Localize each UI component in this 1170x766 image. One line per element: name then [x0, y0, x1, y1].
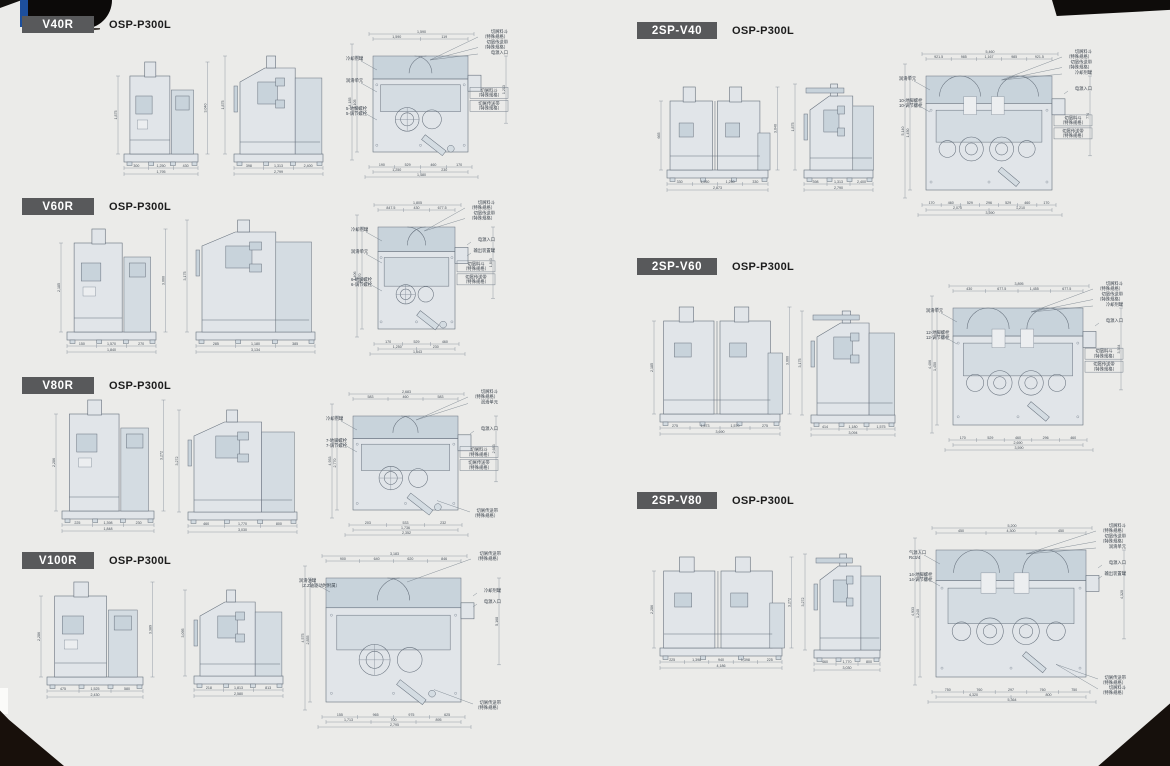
svg-text:1,250: 1,250 — [157, 164, 166, 168]
model-badge-2sp-v40: 2SP-V40 — [637, 22, 717, 39]
section-header-v80r: V80R OSP-P300L — [22, 377, 171, 394]
svg-text:（特殊规格）: （特殊规格） — [1091, 352, 1117, 359]
svg-text:330: 330 — [677, 180, 683, 184]
svg-text:电源入口: 电源入口 — [1109, 559, 1126, 566]
v80r-front-view-drawing: 2251,3982301,8483,2722,286 — [50, 393, 168, 537]
svg-text:3,590: 3,590 — [986, 211, 995, 215]
svg-text:（特殊规格）: （特殊规格） — [476, 105, 502, 112]
svg-text:（特殊规格）: （特殊规格） — [475, 555, 501, 562]
svg-text:218: 218 — [206, 686, 212, 690]
svg-text:3,590: 3,590 — [1015, 446, 1024, 450]
svg-text:3,389: 3,389 — [148, 625, 152, 634]
2sp-v40-plan-svg: 5,460921.59851,167985921.517046052929652… — [898, 48, 1094, 218]
svg-text:800: 800 — [1046, 693, 1052, 697]
svg-text:1,398: 1,398 — [741, 658, 750, 662]
svg-text:430: 430 — [183, 164, 189, 168]
svg-text:6-调节螺栓: 6-调节螺栓 — [351, 281, 373, 288]
svg-text:460: 460 — [403, 395, 409, 399]
svg-text:输出装置罐: 输出装置罐 — [1105, 570, 1127, 577]
svg-text:846: 846 — [441, 557, 447, 561]
svg-text:533: 533 — [403, 521, 409, 525]
svg-text:3,175: 3,175 — [183, 272, 187, 281]
svg-text:529: 529 — [987, 436, 993, 440]
svg-text:460: 460 — [1015, 436, 1021, 440]
svg-text:电源入口: 电源入口 — [481, 425, 498, 432]
svg-text:847.5: 847.5 — [386, 206, 395, 210]
2sp-v80-side-view-drawing: 4601,7708003,0303,272 — [798, 546, 900, 676]
svg-text:190: 190 — [379, 163, 385, 167]
svg-text:2,352: 2,352 — [402, 531, 411, 535]
svg-text:1,455: 1,455 — [1030, 287, 1039, 291]
section-header-2sp-v40: 2SP-V40 OSP-P300L — [637, 22, 794, 39]
svg-text:296: 296 — [1043, 436, 1049, 440]
svg-text:4,186: 4,186 — [717, 664, 726, 668]
svg-text:2,400: 2,400 — [304, 164, 313, 168]
svg-text:（特殊规格）: （特殊规格） — [463, 278, 489, 285]
svg-text:电源入口: 电源入口 — [1075, 85, 1092, 92]
control-label-2sp-v80: OSP-P300L — [732, 495, 794, 507]
svg-text:2,430: 2,430 — [91, 693, 100, 697]
catalog-page: V40R OSP-P300L V60R OSP-P300L V80R OSP-P… — [0, 0, 1170, 766]
svg-text:275: 275 — [672, 424, 678, 428]
svg-text:3,895: 3,895 — [1015, 282, 1024, 286]
svg-text:10-调节螺栓: 10-调节螺栓 — [899, 102, 923, 109]
svg-text:750: 750 — [945, 688, 951, 692]
svg-text:电源入口: 电源入口 — [491, 49, 508, 56]
svg-text:冷却剂罐: 冷却剂罐 — [484, 587, 502, 594]
v100r-front-svg: 4751,5255802,4303,3892,286 — [35, 575, 157, 703]
svg-text:冷却剂罐: 冷却剂罐 — [1075, 69, 1093, 76]
svg-text:677.5: 677.5 — [997, 287, 1006, 291]
svg-text:750: 750 — [1071, 688, 1077, 692]
page-curl-top-right — [1052, 0, 1170, 16]
svg-text:1,590: 1,590 — [392, 35, 401, 39]
svg-text:2,790: 2,790 — [834, 186, 843, 190]
svg-text:1,570: 1,570 — [731, 424, 740, 428]
svg-text:985: 985 — [961, 55, 967, 59]
model-badge-v100r: V100R — [22, 552, 94, 569]
svg-text:774: 774 — [1086, 113, 1090, 119]
svg-text:（特殊规格）: （特殊规格） — [466, 464, 492, 471]
2sp-v40-front-svg: 3301,2501,2503302,8733,040665 — [655, 80, 782, 196]
v80r-plan-svg: 2,6835834605832035332321,7362,3524,9332,… — [325, 388, 500, 538]
v80r-side-view-drawing: 4601,7708003,0303,272 — [172, 402, 317, 538]
svg-text:3,060: 3,060 — [161, 276, 165, 285]
v80r-side-svg: 4601,7708003,0303,272 — [172, 402, 317, 538]
svg-text:2,286: 2,286 — [37, 632, 41, 641]
svg-text:460: 460 — [1070, 436, 1076, 440]
svg-text:（特殊规格）: （特殊规格） — [475, 704, 501, 711]
svg-text:1,240: 1,240 — [916, 609, 920, 618]
svg-text:电源入口: 电源入口 — [478, 236, 495, 243]
svg-text:Rc3/4: Rc3/4 — [909, 555, 921, 560]
svg-text:921.5: 921.5 — [1035, 55, 1044, 59]
svg-text:1,843: 1,843 — [489, 258, 493, 267]
2sp-v60-plan-view-drawing: 3,895430677.51,455677.51705294602964602,… — [925, 280, 1125, 453]
svg-text:1,590: 1,590 — [417, 30, 426, 34]
svg-text:460: 460 — [1024, 201, 1030, 205]
v60r-front-svg: 1501,5702701,8403,0602,185 — [55, 222, 170, 358]
v40r-side-view-drawing: 3981,3132,4002,7991,875 — [218, 48, 343, 180]
svg-text:4,575: 4,575 — [301, 634, 305, 643]
svg-text:1,795: 1,795 — [157, 170, 166, 174]
svg-text:460: 460 — [430, 163, 436, 167]
svg-text:921.5: 921.5 — [934, 55, 943, 59]
svg-text:460: 460 — [822, 660, 828, 664]
svg-text:1,398: 1,398 — [104, 521, 113, 525]
svg-text:12-调节螺栓: 12-调节螺栓 — [926, 334, 950, 341]
svg-text:2,799: 2,799 — [274, 170, 283, 174]
svg-text:5-调节螺栓: 5-调节螺栓 — [346, 110, 368, 117]
v40r-front-view-drawing: 3001,2504301,7953,0401,875 — [112, 55, 212, 180]
svg-text:1,180: 1,180 — [251, 342, 260, 346]
svg-text:1,450: 1,450 — [906, 129, 910, 138]
svg-text:3,690: 3,690 — [716, 430, 725, 434]
v100r-plan-svg: 3,1839006406208461559659756251,713700895… — [298, 550, 503, 730]
v60r-plan-view-drawing: 1,805847.5430677.51705294601,2502301,643… — [350, 199, 497, 357]
model-badge-2sp-v60: 2SP-V60 — [637, 258, 717, 275]
svg-text:3,272: 3,272 — [159, 451, 163, 460]
svg-text:985: 985 — [1011, 55, 1017, 59]
svg-text:170: 170 — [1043, 201, 1049, 205]
svg-text:640: 640 — [374, 557, 380, 561]
v60r-side-svg: 2851,1803853,1343,175 — [180, 212, 335, 358]
svg-text:460: 460 — [442, 340, 448, 344]
svg-text:475: 475 — [60, 687, 66, 691]
v100r-front-view-drawing: 4751,5255802,4303,3892,286 — [35, 575, 157, 703]
svg-text:1,480: 1,480 — [417, 173, 426, 177]
svg-text:625: 625 — [444, 713, 450, 717]
svg-text:5,200: 5,200 — [1008, 524, 1017, 528]
svg-text:1,167: 1,167 — [985, 55, 994, 59]
v40r-front-svg: 3001,2504301,7953,0401,875 — [112, 55, 212, 180]
model-badge-v60r: V60R — [22, 198, 94, 215]
section-header-v100r: V100R OSP-P300L — [22, 552, 171, 569]
svg-text:677.5: 677.5 — [1062, 287, 1071, 291]
svg-text:1,573: 1,573 — [701, 424, 710, 428]
svg-text:1,813: 1,813 — [234, 686, 243, 690]
page-curl-bottom-left — [0, 700, 64, 766]
page-curl-bottom-right — [1092, 698, 1170, 766]
section-header-v60r: V60R OSP-P300L — [22, 198, 171, 215]
svg-text:5,460: 5,460 — [986, 50, 995, 54]
svg-text:529: 529 — [967, 201, 973, 205]
svg-text:5,168: 5,168 — [495, 617, 499, 626]
svg-text:170: 170 — [929, 201, 935, 205]
svg-text:677.5: 677.5 — [438, 206, 447, 210]
svg-text:（特殊规格）: （特殊规格） — [1060, 132, 1086, 139]
svg-text:1,575: 1,575 — [877, 425, 886, 429]
svg-text:155: 155 — [337, 713, 343, 717]
svg-text:2,580: 2,580 — [234, 692, 243, 696]
svg-text:2,770: 2,770 — [333, 459, 337, 468]
2sp-v60-plan-svg: 3,895430677.51,455677.51705294602964602,… — [925, 280, 1125, 453]
svg-text:1,250: 1,250 — [700, 180, 709, 184]
svg-text:（特殊规格）: （特殊规格） — [463, 265, 489, 272]
svg-text:1,736: 1,736 — [401, 526, 410, 530]
section-header-v40r: V40R OSP-P300L — [22, 16, 171, 33]
v100r-plan-view-drawing: 3,1839006406208461559659756251,713700895… — [298, 550, 503, 730]
svg-text:3,272: 3,272 — [787, 598, 791, 607]
svg-text:232: 232 — [440, 521, 446, 525]
svg-text:（特殊规格）: （特殊规格） — [469, 214, 495, 221]
svg-text:230: 230 — [441, 168, 447, 172]
svg-text:14-调节螺栓: 14-调节螺栓 — [909, 576, 933, 583]
svg-text:529: 529 — [405, 163, 411, 167]
svg-text:813: 813 — [265, 686, 271, 690]
svg-text:225: 225 — [74, 521, 80, 525]
svg-text:1,770: 1,770 — [238, 522, 247, 526]
v80r-plan-view-drawing: 2,6835834605832035332321,7362,3524,9332,… — [325, 388, 500, 538]
2sp-v80-front-view-drawing: 2251,3989401,3982254,1863,2722,286 — [648, 550, 796, 674]
svg-text:3,094: 3,094 — [849, 431, 858, 435]
svg-text:输出装置罐: 输出装置罐 — [474, 247, 496, 254]
svg-text:3,040: 3,040 — [773, 124, 777, 133]
svg-text:3,060: 3,060 — [785, 356, 789, 365]
svg-text:1,398: 1,398 — [692, 658, 701, 662]
svg-text:1,525: 1,525 — [91, 687, 100, 691]
svg-text:2,286: 2,286 — [650, 605, 654, 614]
control-label-v40r: OSP-P300L — [109, 19, 171, 31]
svg-text:620: 620 — [407, 557, 413, 561]
svg-text:965: 965 — [373, 713, 379, 717]
svg-text:2,185: 2,185 — [57, 283, 61, 292]
control-label-v60r: OSP-P300L — [109, 201, 171, 213]
svg-text:270: 270 — [138, 342, 144, 346]
v80r-front-svg: 2251,3982301,8483,2722,286 — [50, 393, 168, 537]
svg-text:2,070: 2,070 — [953, 206, 962, 210]
svg-text:203: 203 — [365, 521, 371, 525]
control-label-v100r: OSP-P300L — [109, 555, 171, 567]
svg-text:275: 275 — [762, 424, 768, 428]
svg-text:330: 330 — [752, 180, 758, 184]
svg-text:975: 975 — [408, 713, 414, 717]
control-label-2sp-v40: OSP-P300L — [732, 25, 794, 37]
svg-text:1,643: 1,643 — [413, 350, 422, 354]
svg-text:2,683: 2,683 — [492, 444, 496, 453]
model-badge-v80r: V80R — [22, 377, 94, 394]
svg-text:583: 583 — [438, 395, 444, 399]
svg-text:2,873: 2,873 — [713, 186, 722, 190]
2sp-v60-side-svg: 4141,1801,5753,0943,175 — [795, 303, 915, 441]
svg-text:1,250: 1,250 — [392, 168, 401, 172]
svg-text:（特殊规格）: （特殊规格） — [1060, 119, 1086, 126]
svg-text:940: 940 — [718, 658, 724, 662]
svg-text:900: 900 — [340, 557, 346, 561]
svg-text:460: 460 — [948, 201, 954, 205]
svg-text:3,364: 3,364 — [1117, 344, 1121, 353]
svg-text:（特殊规格）: （特殊规格） — [1100, 689, 1126, 696]
svg-text:285: 285 — [213, 342, 219, 346]
svg-text:460: 460 — [203, 522, 209, 526]
svg-text:2,795: 2,795 — [390, 723, 399, 727]
2sp-v60-front-view-drawing: 2751,5731,5702753,6903,0602,185 — [648, 300, 794, 440]
svg-text:（特殊规格）: （特殊规格） — [1091, 365, 1117, 372]
svg-text:430: 430 — [966, 287, 972, 291]
svg-text:230: 230 — [433, 345, 439, 349]
v60r-plan-svg: 1,805847.5430677.51705294601,2502301,643… — [350, 199, 497, 357]
svg-text:4,933: 4,933 — [911, 607, 915, 616]
svg-text:1,570: 1,570 — [107, 342, 116, 346]
svg-text:430: 430 — [414, 206, 420, 210]
2sp-v80-front-svg: 2251,3989401,3982254,1863,2722,286 — [648, 550, 796, 674]
svg-text:3,030: 3,030 — [238, 528, 247, 532]
svg-text:1,840: 1,840 — [107, 348, 116, 352]
svg-text:300: 300 — [133, 164, 139, 168]
svg-text:1,848: 1,848 — [104, 527, 113, 531]
2sp-v40-side-svg: 3981,3132,4002,7901,875 — [788, 76, 893, 196]
svg-text:1,250: 1,250 — [726, 180, 735, 184]
svg-text:1,875: 1,875 — [221, 101, 225, 110]
svg-text:（特殊规格）: （特殊规格） — [466, 451, 492, 458]
svg-text:3,272: 3,272 — [801, 598, 805, 607]
svg-text:170: 170 — [456, 163, 462, 167]
svg-text:398: 398 — [246, 164, 252, 168]
section-header-2sp-v80: 2SP-V80 OSP-P300L — [637, 492, 794, 509]
svg-text:760: 760 — [976, 688, 982, 692]
v40r-plan-svg: 1,5901,5901191905294601701,2502301,4804,… — [345, 28, 510, 180]
svg-text:润滑单元: 润滑单元 — [481, 399, 499, 406]
svg-text:580: 580 — [124, 687, 130, 691]
svg-text:5,140: 5,140 — [901, 127, 905, 136]
v100r-side-view-drawing: 2181,8138132,5803,095 — [178, 582, 303, 702]
2sp-v60-front-svg: 2751,5731,5702753,6903,0602,185 — [648, 300, 794, 440]
svg-text:385: 385 — [292, 342, 298, 346]
svg-text:2,855: 2,855 — [306, 636, 310, 645]
model-badge-2sp-v80: 2SP-V80 — [637, 492, 717, 509]
page-curl-top-left — [0, 0, 22, 8]
2sp-v80-plan-view-drawing: 5,2004504,3004507507602977607504,3208005… — [908, 522, 1128, 705]
svg-text:3,134: 3,134 — [251, 348, 260, 352]
svg-text:700: 700 — [391, 718, 397, 722]
svg-text:5,364: 5,364 — [1008, 698, 1017, 702]
control-label-2sp-v60: OSP-P300L — [732, 261, 794, 273]
svg-text:230: 230 — [136, 521, 142, 525]
svg-text:7-调节螺栓: 7-调节螺栓 — [326, 442, 348, 449]
svg-text:2,185: 2,185 — [650, 363, 654, 372]
svg-text:4,406: 4,406 — [928, 360, 932, 369]
svg-text:冷却剂罐: 冷却剂罐 — [1106, 301, 1124, 308]
svg-text:电源入口: 电源入口 — [1106, 317, 1123, 324]
svg-text:（特殊规格）: （特殊规格） — [472, 512, 498, 519]
svg-text:665: 665 — [657, 133, 661, 139]
svg-text:1,805: 1,805 — [413, 201, 422, 205]
2sp-v80-side-svg: 4601,7708003,0303,272 — [798, 546, 900, 676]
svg-text:3,040: 3,040 — [203, 104, 207, 113]
svg-text:1,770: 1,770 — [843, 660, 852, 664]
svg-text:2,690: 2,690 — [1014, 441, 1023, 445]
svg-text:1,875: 1,875 — [114, 111, 118, 120]
v40r-side-svg: 3981,3132,4002,7991,875 — [218, 48, 343, 180]
svg-text:2,400: 2,400 — [857, 180, 866, 184]
svg-text:润滑单元: 润滑单元 — [1109, 543, 1127, 550]
svg-text:119: 119 — [441, 35, 447, 39]
svg-text:150: 150 — [79, 342, 85, 346]
svg-text:296: 296 — [986, 201, 992, 205]
v40r-plan-view-drawing: 1,5901,5901191905294601701,2502301,4804,… — [345, 28, 510, 180]
svg-text:297: 297 — [1008, 688, 1014, 692]
2sp-v40-side-view-drawing: 3981,3132,4002,7901,875 — [788, 76, 893, 196]
svg-text:1,713: 1,713 — [344, 718, 353, 722]
svg-text:450: 450 — [1058, 529, 1064, 533]
svg-text:电源入口: 电源入口 — [484, 598, 501, 605]
svg-text:450: 450 — [958, 529, 964, 533]
svg-text:398: 398 — [813, 180, 819, 184]
model-badge-v40r: V40R — [22, 16, 94, 33]
svg-text:529: 529 — [1005, 201, 1011, 205]
svg-text:895: 895 — [436, 718, 442, 722]
svg-text:4,320: 4,320 — [1120, 590, 1124, 599]
svg-text:414: 414 — [822, 425, 828, 429]
svg-text:2,683: 2,683 — [402, 390, 411, 394]
v100r-side-svg: 2181,8138132,5803,095 — [178, 582, 303, 702]
v60r-side-view-drawing: 2851,1803853,1343,175 — [180, 212, 335, 358]
svg-text:4,300: 4,300 — [1007, 529, 1016, 533]
svg-text:225: 225 — [669, 658, 675, 662]
svg-text:1,213: 1,213 — [502, 85, 506, 94]
svg-text:1,875: 1,875 — [791, 123, 795, 132]
svg-text:1,210: 1,210 — [1016, 206, 1025, 210]
svg-text:2,286: 2,286 — [52, 458, 56, 467]
svg-text:3,272: 3,272 — [175, 457, 179, 466]
svg-text:1,450: 1,450 — [933, 362, 937, 371]
svg-text:1,313: 1,313 — [274, 164, 283, 168]
svg-text:3,175: 3,175 — [798, 359, 802, 368]
v60r-front-view-drawing: 1501,5702701,8403,0602,185 — [55, 222, 170, 358]
2sp-v60-side-view-drawing: 4141,1801,5753,0943,175 — [795, 303, 915, 441]
2sp-v80-plan-svg: 5,2004504,3004507507602977607504,3208005… — [908, 522, 1128, 705]
page-edge-white — [0, 688, 8, 714]
svg-text:170: 170 — [385, 340, 391, 344]
svg-text:（Z.Z轴驱动时附属）: （Z.Z轴驱动时附属） — [299, 582, 340, 589]
svg-text:800: 800 — [276, 522, 282, 526]
svg-text:3,030: 3,030 — [843, 666, 852, 670]
2sp-v40-front-view-drawing: 3301,2501,2503302,8733,040665 — [655, 80, 782, 196]
section-header-2sp-v60: 2SP-V60 OSP-P300L — [637, 258, 794, 275]
svg-text:760: 760 — [1040, 688, 1046, 692]
svg-text:800: 800 — [866, 660, 872, 664]
2sp-v40-plan-view-drawing: 5,460921.59851,167985921.517046052929652… — [898, 48, 1094, 218]
svg-text:170: 170 — [960, 436, 966, 440]
svg-text:3,095: 3,095 — [181, 629, 185, 638]
svg-text:（特殊规格）: （特殊规格） — [476, 92, 502, 99]
svg-text:3,183: 3,183 — [390, 552, 399, 556]
svg-text:529: 529 — [414, 340, 420, 344]
svg-text:4,320: 4,320 — [969, 693, 978, 697]
svg-text:1,313: 1,313 — [834, 180, 843, 184]
svg-text:225: 225 — [767, 658, 773, 662]
svg-text:1,180: 1,180 — [849, 425, 858, 429]
svg-text:1,250: 1,250 — [393, 345, 402, 349]
control-label-v80r: OSP-P300L — [109, 380, 171, 392]
svg-text:4,933: 4,933 — [328, 457, 332, 466]
svg-text:583: 583 — [368, 395, 374, 399]
